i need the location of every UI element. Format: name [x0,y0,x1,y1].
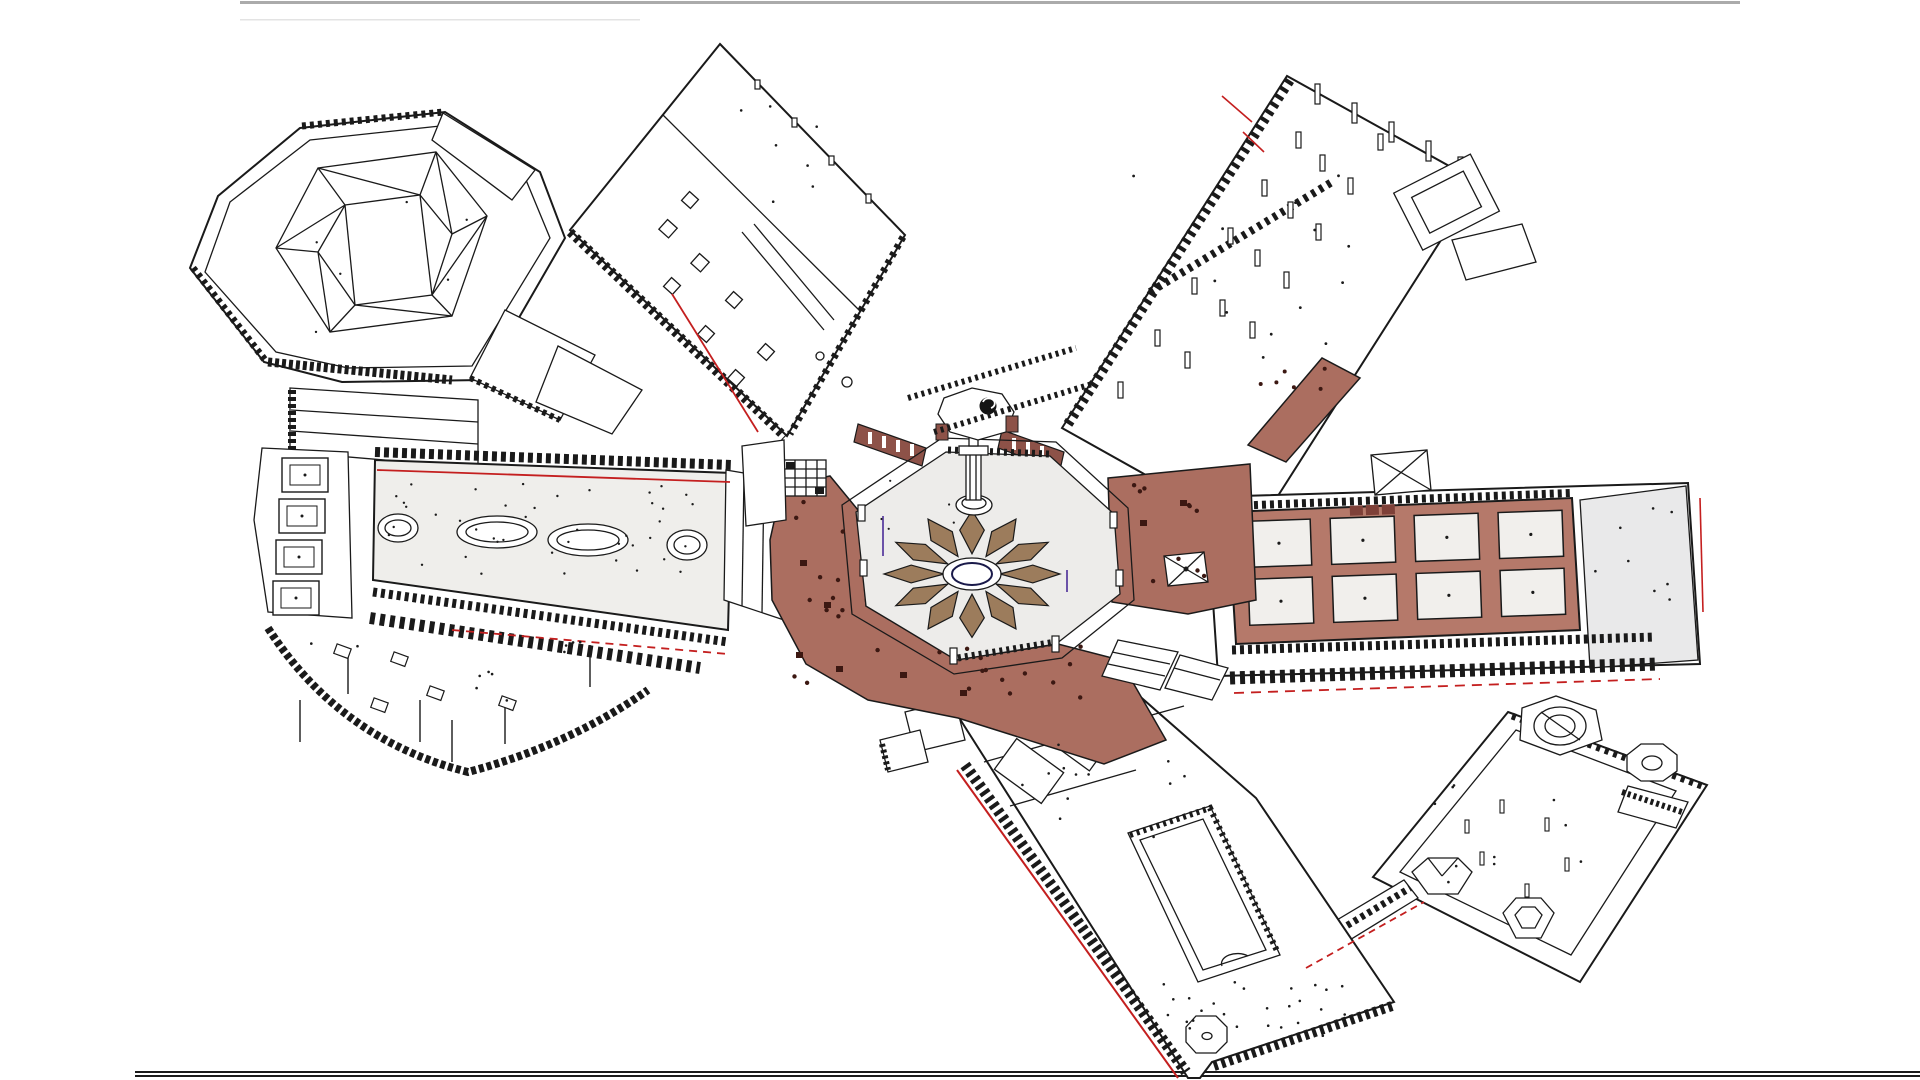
stipple-dot [567,541,569,543]
stipple-dot [533,507,535,509]
stipple-dot [1325,342,1328,345]
stipple-dot [1172,998,1175,1001]
stipple-dot [447,279,449,281]
stipple-dot [1236,1025,1239,1028]
stipple-dot [1188,997,1191,1000]
stipple-dot [937,650,941,654]
stipple-dot [1243,987,1246,990]
stipple-dot [1078,645,1082,649]
stipple-dot [1668,598,1671,601]
stipple-dot [618,543,620,545]
stipple-dot [1167,760,1170,763]
lotus-center-pool [952,563,992,585]
stipple-dot [1319,387,1323,391]
lotus-center-ring [943,558,1001,590]
free-column [1185,352,1190,368]
free-column [1378,134,1383,150]
stipple-dot [1553,799,1556,802]
stipple-dot [1078,695,1082,699]
stipple-dot [889,480,891,482]
stipple-dot [875,648,879,652]
stipple-dot [685,494,687,496]
stipple-dot [1051,680,1055,684]
stipple-dot [1221,227,1224,230]
stipple-dot [792,674,796,678]
pad-dot [295,597,298,600]
stipple-dot [1341,985,1344,988]
bottom-border-rule-2 [135,1075,1920,1077]
pad-dot [304,474,307,477]
stipple-dot [1195,509,1199,513]
stipple-dot [475,528,477,530]
stipple-dot [651,502,653,504]
stipple-dot [1066,797,1069,800]
southeast-courtyard-compound [1373,696,1707,982]
terracotta-inlay [800,560,807,566]
stipple-dot [1186,1021,1189,1024]
stipple-dot [1447,881,1450,884]
stipple-dot [1337,174,1340,177]
stipple-dot [979,656,983,660]
stipple-dot [980,669,984,673]
east-wing-dark-bays [1350,504,1395,516]
compound-column [1565,858,1569,871]
stipple-dot [1021,784,1024,787]
stipple-dot [965,647,969,651]
stipple-dot [310,642,313,645]
west-wing-pad-block [254,448,352,618]
stipple-dot [1075,773,1078,776]
free-column [1192,278,1197,294]
stipple-dot [615,559,617,561]
stipple-dot [801,500,805,504]
stipple-dot [1493,856,1496,859]
free-column [1118,382,1123,398]
free-column [1288,202,1293,218]
stipple-dot [522,483,524,485]
stipple-dot [1132,483,1136,487]
stipple-dot [1068,662,1072,666]
stipple-dot [1202,574,1206,578]
stipple-dot [1008,691,1012,695]
stipple-dot [663,558,665,560]
stipple-dot [316,241,318,243]
terracotta-inlay [836,666,843,672]
site-plan-drawing [0,0,1920,1080]
stipple-dot [1325,988,1328,991]
stipple-dot [491,673,494,676]
stipple-dot [812,185,815,188]
stipple-dot [659,520,661,522]
stipple-dot [1138,489,1142,493]
terracotta-inlay [960,690,967,696]
stipple-dot [772,200,775,203]
stipple-dot [1063,767,1066,770]
stipple-dot [1167,1014,1170,1017]
stipple-dot [403,502,405,504]
stipple-dot [478,675,481,678]
stipple-dot [948,503,950,505]
stipple-dot [588,489,590,491]
apron-pad [499,696,517,711]
stipple-dot [502,539,504,541]
stipple-dot [556,495,558,497]
stipple-dot [1323,367,1327,371]
stipple-dot [496,541,498,543]
stipple-dot [836,578,840,582]
stipple-dot [691,503,693,505]
bottom-border-rule [135,1071,1920,1073]
stipple-dot [836,614,840,618]
stipple-dot [435,514,437,516]
terracotta-inlay [1140,520,1147,526]
stipple-dot [831,596,835,600]
stipple-dot [806,164,809,167]
stipple-dot [1223,1013,1226,1016]
stipple-dot [815,125,818,128]
stipple-dot [684,545,686,547]
stipple-dot [1434,803,1437,806]
edge-column [1352,103,1357,123]
stipple-dot [1653,590,1656,593]
stipple-dot [388,534,390,536]
stipple-dot [840,608,844,612]
pad-dot [298,556,301,559]
stipple-dot [1176,557,1180,561]
stipple-dot [679,571,681,573]
east-wing-stair-tower [1371,450,1431,495]
stipple-dot [1453,784,1456,787]
stipple-dot [1262,356,1265,359]
stipple-dot [1294,201,1297,204]
stipple-dot [1341,281,1344,284]
stipple-dot [1322,1034,1325,1037]
free-column [1220,300,1225,316]
stipple-dot [1347,245,1350,248]
stipple-dot [393,526,395,528]
free-column [1296,132,1301,148]
stair-parapet [742,440,786,526]
stipple-dot [1619,527,1622,530]
stipple-dot [775,144,778,147]
stipple-dot [1564,824,1567,827]
stipple-dot [1259,382,1263,386]
stipple-dot [769,105,772,108]
stipple-dot [1666,583,1669,586]
stipple-dot [648,491,650,493]
free-column [1320,155,1325,171]
stipple-dot [1343,1013,1346,1016]
stipple-dot [740,109,743,112]
stipple-dot [525,516,527,518]
stipple-dot [1267,1024,1270,1027]
stipple-dot [1225,311,1228,314]
stipple-dot [1266,1007,1269,1010]
stipple-dot [315,331,317,333]
stipple-dot [1212,1002,1215,1005]
compound-column [1465,820,1469,833]
top-border-rule-faint [240,19,640,21]
stipple-dot [1188,504,1192,508]
stipple-dot [1299,1000,1302,1003]
stipple-dot [1163,983,1166,986]
stipple-dot [967,687,971,691]
stipple-dot [660,485,662,487]
stipple-dot [572,641,575,644]
free-column [1255,250,1260,266]
court-north-kiosk [936,388,1018,440]
stipple-dot [1183,775,1186,778]
apron-pad [427,686,445,701]
stipple-dot [1292,385,1296,389]
stipple-dot [632,544,634,546]
stipple-dot [841,529,845,533]
court-approach-colonnade-1 [908,348,1076,398]
edge-column [1426,141,1431,161]
stipple-dot [1059,817,1062,820]
stipple-dot [1320,1008,1323,1011]
compound-column [1545,818,1549,831]
stipple-dot [1299,306,1302,309]
stipple-dot [406,201,408,203]
stipple-dot [1270,333,1273,336]
stipple-dot [1152,836,1155,839]
terracotta-inlay [1180,500,1187,506]
terracotta-inlay [824,602,831,608]
stipple-dot [1047,772,1050,775]
compound-column [1480,852,1484,865]
stipple-dot [1189,1027,1192,1030]
stipple-dot [1213,280,1216,283]
free-column [1155,330,1160,346]
east-wing-end-plaza [1580,486,1698,668]
red-east-wing-south [1234,679,1660,693]
stipple-dot [1283,370,1287,374]
entry-ornament-square [1164,552,1208,586]
apron-posts [300,645,590,762]
stipple-dot [1057,744,1060,747]
stipple-dot [888,528,890,530]
stipple-dot [1297,1022,1300,1025]
stipple-dot [1192,1019,1195,1022]
free-column [1228,228,1233,244]
stipple-dot [1000,678,1004,682]
stipple-dot [474,488,476,490]
stipple-dot [339,273,341,275]
stipple-dot [1652,507,1655,510]
stipple-dot [475,687,478,690]
stipple-dot [579,641,582,644]
free-column [1348,178,1353,194]
stipple-dot [805,681,809,685]
stipple-dot [563,651,566,654]
west-wing-south-colonnade-2 [370,618,700,668]
stipple-dot [405,506,407,508]
stipple-dot [459,520,461,522]
stipple-dot [818,575,822,579]
compound-column [1525,884,1529,897]
apron-pads [334,644,517,713]
northeast-terrace-wing [1062,76,1536,535]
stipple-dot [421,564,423,566]
drawing-canvas [0,0,1920,1080]
stipple-dot [479,638,482,641]
stipple-dot [1023,671,1027,675]
stipple-dot [1290,987,1293,990]
ne-terrace-annex [1452,224,1536,280]
south-wing-terrace-octagon [1186,1016,1227,1053]
stipple-dot [1142,486,1146,490]
apron-pad [334,644,352,659]
free-column [1262,180,1267,196]
top-border-rule [240,1,1740,4]
stipple-dot [563,572,565,574]
stipple-dot [1670,511,1673,514]
free-column [1284,272,1289,288]
stipple-dot [504,504,506,506]
red-east-wing-end [1700,498,1703,612]
free-column [1250,322,1255,338]
stipple-dot [465,556,467,558]
stipple-dot [953,522,955,524]
stipple-dot [824,608,828,612]
apron-pad [371,698,389,713]
stipple-dot [466,219,468,221]
stipple-dot [1580,860,1583,863]
pad-dot [301,515,304,518]
stipple-dot [649,537,651,539]
stipple-dot [1132,175,1135,178]
stipple-dot [1200,1009,1203,1012]
free-column [1316,224,1321,240]
stipple-dot [410,483,412,485]
edge-column [1315,84,1320,104]
terracotta-inlay [796,652,803,658]
stipple-dot [1288,1005,1291,1008]
stipple-dot [1314,984,1317,987]
west-gallery-wing [254,448,786,772]
stipple-dot [1493,863,1496,866]
stipple-dot [1280,1026,1283,1029]
stipple-dot [625,535,627,537]
edge-column [1389,122,1394,142]
stipple-dot [1455,865,1458,868]
stipple-dot [794,516,798,520]
stipple-dot [1234,981,1237,984]
stipple-dot [1313,229,1316,232]
stipple-dot [487,671,490,674]
stipple-dot [1087,773,1090,776]
stipple-dot [1594,570,1597,573]
terracotta-inlay [900,672,907,678]
stipple-dot [356,645,359,648]
stipple-dot [1627,560,1630,563]
compound-column [1500,800,1504,813]
apron-pad [391,652,409,667]
stipple-dot [565,644,568,647]
stipple-dot [493,537,495,539]
stipple-dot [1151,579,1155,583]
stipple-dot [636,569,638,571]
stipple-dot [1169,782,1172,785]
stipple-dot [480,573,482,575]
hexagonal-pavilion-northwest [190,112,642,468]
stipple-dot [1195,568,1199,572]
stipple-dot [1274,380,1278,384]
stipple-dot [395,495,397,497]
stipple-dot [880,518,882,520]
stipple-dot [808,598,812,602]
stipple-dot [506,699,509,702]
stipple-dot [662,508,664,510]
stipple-dot [551,552,553,554]
stipple-dot [576,529,578,531]
